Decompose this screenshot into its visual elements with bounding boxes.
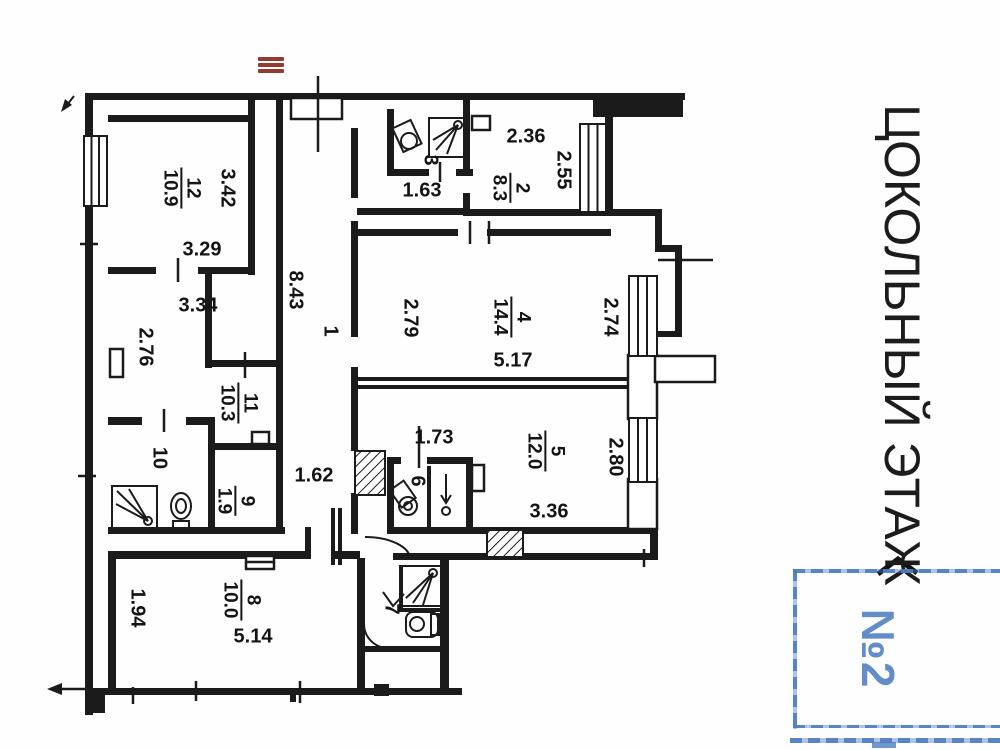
dim-8-43: 8.43: [284, 271, 307, 310]
stamp-box-top-border: [793, 569, 1000, 573]
room-area: 10.3: [217, 383, 237, 424]
floor-plan-drawing: [0, 0, 1000, 750]
dim-1-94: 1.94: [126, 589, 149, 628]
room-area: 10.0: [220, 580, 240, 621]
menu-icon[interactable]: [258, 57, 284, 75]
room-number-1: 1: [319, 325, 342, 336]
stamp-number: №2: [851, 609, 905, 690]
hatched-wall-blocks: [355, 451, 523, 557]
room-area: 1.9: [214, 486, 234, 516]
dim-3-42: 3.42: [216, 169, 239, 208]
dim-2-76: 2.76: [134, 328, 157, 367]
dim-3-29: 3.29: [183, 239, 222, 262]
toilet-room-7: [406, 612, 439, 637]
dim-2-80: 2.80: [604, 438, 627, 477]
room-label-9: 9 1.9: [214, 486, 257, 516]
menu-icon-bar: [258, 57, 284, 61]
dim-2-79: 2.79: [399, 299, 422, 338]
room-number-7: 7: [380, 603, 403, 614]
room-area: 10.9: [160, 168, 180, 209]
toilet-room-10: [171, 493, 191, 530]
dim-5-17: 5.17: [494, 350, 533, 373]
menu-icon-bar: [258, 69, 284, 73]
entrance-arrow: [47, 683, 88, 695]
room-label-5: 5 12.0: [524, 431, 567, 472]
room-number-6: 6: [406, 475, 429, 486]
stamp-box-left-border: [793, 569, 797, 729]
room-label-12: 12 10.9: [160, 168, 203, 209]
floor-plan-page: 12 10.9 2 8.3 4 14.4 5 12.0 11 10.3 9 1.…: [0, 0, 1000, 750]
shower-room-3: [429, 118, 465, 157]
room-number-10: 10: [148, 447, 171, 469]
room-number: 8: [240, 580, 262, 621]
room-area: 14.4: [490, 297, 510, 338]
room-number: 11: [237, 383, 259, 424]
room-number: 5: [544, 431, 566, 472]
dim-1-62: 1.62: [295, 465, 334, 488]
room-number: 2: [509, 173, 531, 203]
dim-3-34: 3.34: [179, 295, 218, 318]
dim-3-36: 3.36: [530, 501, 569, 524]
room-label-4: 4 14.4: [490, 297, 533, 338]
room-label-8: 8 10.0: [220, 580, 263, 621]
stamp-box-inner-border: [793, 725, 1000, 728]
dim-1-73: 1.73: [415, 427, 454, 450]
room-number: 9: [234, 486, 256, 516]
shower-room-10: [112, 486, 157, 530]
dim-1-63: 1.63: [403, 180, 442, 203]
floor-title: ЦОКОЛЬНЫЙ ЭТАЖ: [873, 104, 931, 586]
room-area: 8.3: [489, 173, 509, 203]
stamp-fragment: [872, 742, 896, 748]
dim-2-36: 2.36: [507, 126, 546, 149]
room-number: 12: [180, 168, 202, 209]
dim-5-14: 5.14: [234, 626, 273, 649]
room-label-2: 2 8.3: [489, 173, 532, 203]
room-label-11: 11 10.3: [217, 383, 260, 424]
shower-room-7: [402, 566, 441, 606]
toilet-room-3: [392, 120, 421, 152]
room-number-3: 3: [419, 154, 442, 165]
cursor-mark: [61, 96, 74, 112]
room-area: 12.0: [524, 431, 544, 472]
shower-drain-room-6: [441, 474, 451, 515]
dim-2-74: 2.74: [599, 298, 622, 337]
room-number: 4: [510, 297, 532, 338]
menu-icon-bar: [258, 63, 284, 67]
dim-2-55: 2.55: [552, 151, 575, 190]
